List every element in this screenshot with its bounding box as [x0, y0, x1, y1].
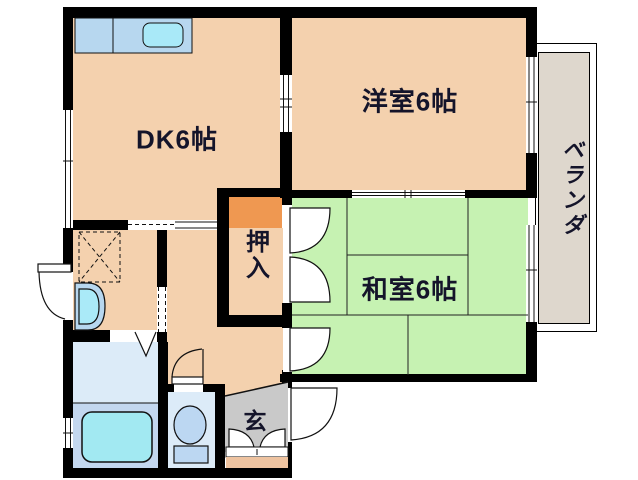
- front-door: [283, 388, 337, 442]
- bathroom-folding-door: [110, 330, 157, 356]
- opening-hall-washroom-dashed: [157, 287, 167, 332]
- closet-doors: [283, 205, 330, 303]
- japanese-room-door: [283, 328, 330, 372]
- label-veranda: ベランダ: [555, 138, 587, 238]
- kitchen-counter: [75, 18, 192, 53]
- entrance-step: [226, 457, 288, 468]
- label-closet: 押入: [238, 229, 273, 281]
- toilet: [174, 406, 208, 463]
- window-japanese-veranda: [526, 225, 537, 322]
- opening-dk-hall-dashed: [128, 220, 175, 230]
- plan-overlay: [0, 0, 638, 480]
- floor-plan: DK6帖 洋室6帖 和室6帖 押入 玄 ベランダ: [0, 0, 638, 480]
- label-dining-kitchen: DK6帖: [136, 120, 218, 157]
- toilet-door: [172, 349, 203, 392]
- bathtub: [82, 412, 152, 462]
- sliding-door-dk-western: [280, 75, 292, 132]
- window-dk-left: [63, 110, 73, 228]
- opening-dk-hall-track: [175, 220, 217, 230]
- label-entrance: 玄: [244, 402, 267, 436]
- washing-machine-space: [79, 232, 120, 282]
- window-western-veranda: [526, 57, 537, 153]
- label-japanese-room: 和室6帖: [362, 270, 458, 307]
- kitchen-sink: [143, 23, 183, 47]
- label-western-room: 洋室6帖: [362, 82, 458, 119]
- window-bath-left: [63, 418, 73, 448]
- washbasin: [75, 283, 105, 330]
- sliding-door-western-japanese: [352, 190, 465, 198]
- back-door: [38, 264, 73, 320]
